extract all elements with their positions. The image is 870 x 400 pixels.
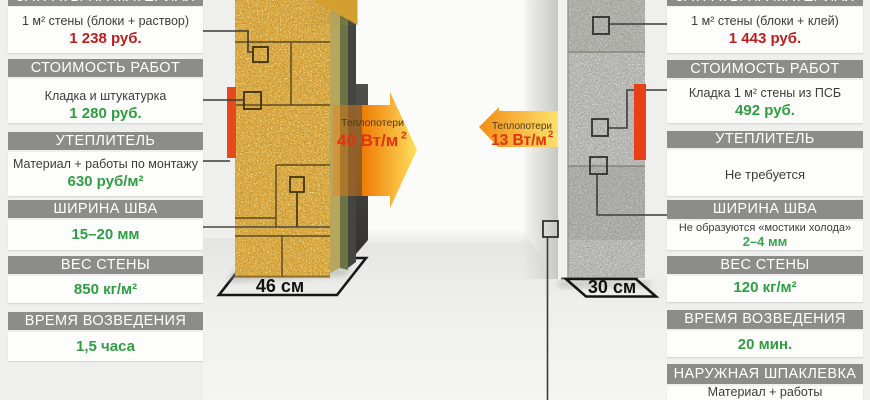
svg-text:46 см: 46 см (256, 276, 304, 296)
svg-text:30 см: 30 см (588, 277, 636, 297)
svg-text:2: 2 (401, 130, 407, 142)
svg-text:2: 2 (548, 129, 553, 140)
svg-text:Теплопотери: Теплопотери (341, 117, 404, 129)
svg-text:40 Вт/м: 40 Вт/м (337, 131, 398, 150)
svg-text:Теплопотери: Теплопотери (492, 121, 552, 132)
svg-text:13 Вт/м: 13 Вт/м (491, 132, 547, 149)
